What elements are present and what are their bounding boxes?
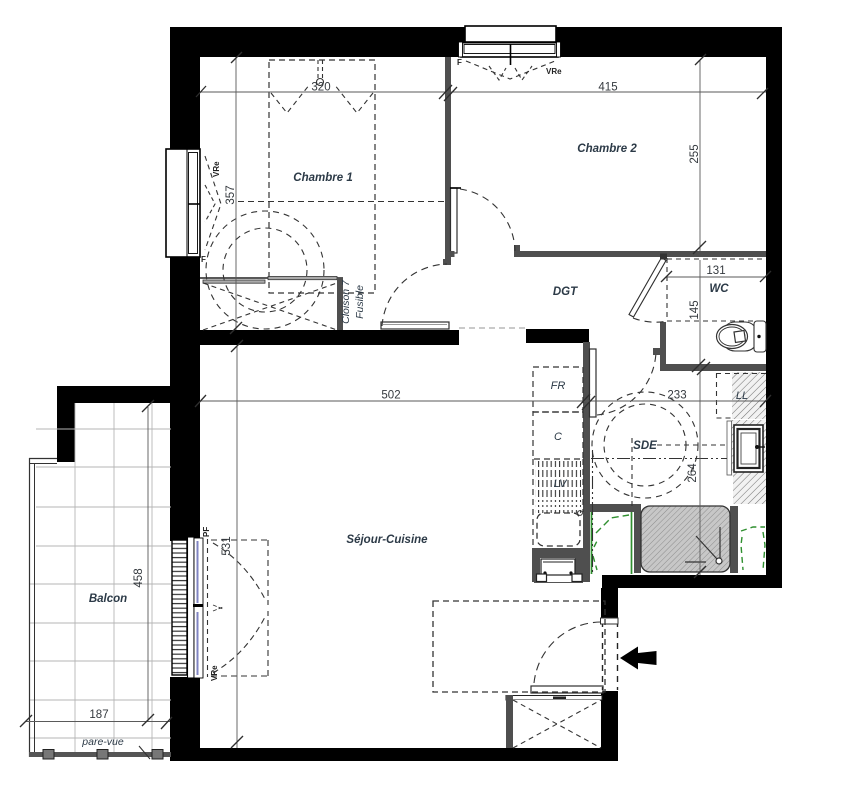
svg-text:357: 357	[225, 185, 237, 204]
svg-text:pare-vue: pare-vue	[81, 736, 124, 748]
svg-text:Chambre 1: Chambre 1	[293, 172, 352, 184]
svg-text:Cloison 7: Cloison 7	[340, 279, 352, 324]
svg-text:DGT: DGT	[553, 286, 578, 298]
svg-text:264: 264	[687, 463, 699, 483]
svg-text:F: F	[201, 255, 206, 264]
svg-text:VRe: VRe	[210, 665, 219, 681]
svg-text:VRe: VRe	[212, 161, 221, 177]
svg-text:131: 131	[706, 265, 725, 277]
svg-text:F: F	[457, 58, 462, 67]
svg-text:FR: FR	[551, 380, 566, 392]
svg-text:Séjour-Cuisine: Séjour-Cuisine	[346, 534, 428, 546]
svg-text:VRe: VRe	[546, 67, 562, 76]
svg-text:187: 187	[89, 709, 108, 721]
svg-text:LL: LL	[736, 390, 748, 402]
svg-text:Chambre 2: Chambre 2	[577, 143, 637, 155]
svg-text:145: 145	[689, 300, 701, 319]
svg-text:320: 320	[311, 82, 330, 94]
svg-text:LV: LV	[554, 478, 569, 490]
svg-text:SDE: SDE	[633, 440, 657, 452]
svg-text:458: 458	[133, 568, 145, 587]
svg-text:255: 255	[689, 144, 701, 163]
svg-text:C: C	[554, 431, 562, 443]
svg-text:233: 233	[667, 390, 686, 402]
svg-text:Balcon: Balcon	[89, 593, 127, 605]
svg-text:502: 502	[381, 390, 400, 402]
svg-text:531: 531	[221, 536, 233, 555]
svg-text:Fusible: Fusible	[354, 285, 366, 319]
svg-text:WC: WC	[709, 283, 729, 295]
svg-text:415: 415	[598, 82, 617, 94]
svg-text:PF: PF	[202, 527, 211, 537]
